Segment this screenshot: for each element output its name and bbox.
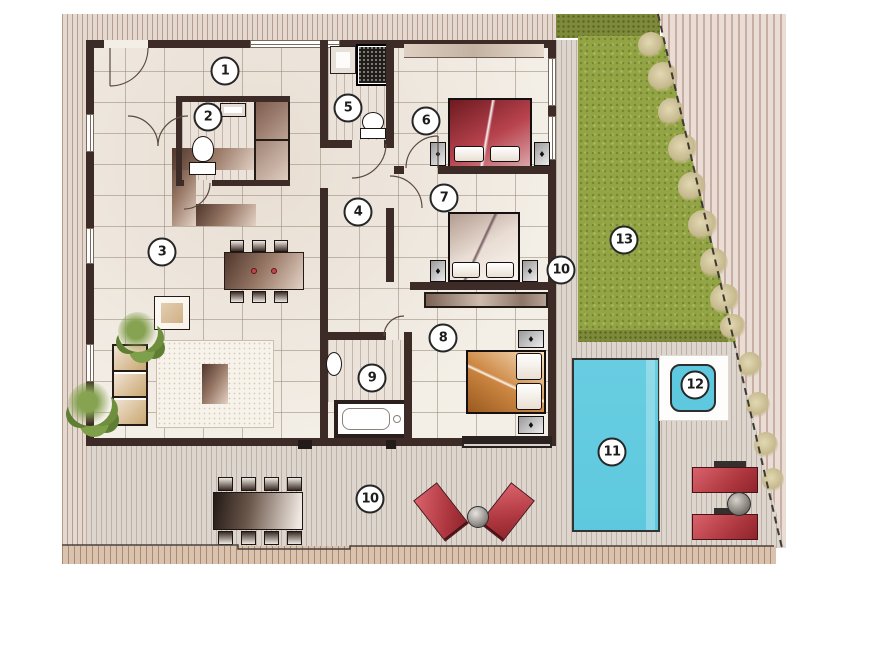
room-marker-room-1: 1 (211, 57, 240, 86)
pillow (454, 146, 484, 162)
side-table (727, 492, 751, 516)
lower-sand-band (62, 546, 776, 564)
room-marker-room-6: 6 (412, 107, 441, 136)
cooktop-dot (251, 268, 257, 274)
room-marker-room-10a: 10 (547, 256, 576, 285)
wall-bath9-top (328, 332, 386, 340)
shrub-icon (638, 32, 664, 58)
nightstand: ♦ (430, 142, 446, 166)
shrub-icon (688, 210, 718, 240)
outdoor-dining-table (213, 492, 303, 530)
outdoor-chair (218, 531, 233, 545)
dining-chair (274, 240, 288, 252)
room-marker-room-8: 8 (429, 324, 458, 353)
plant-icon (68, 382, 112, 426)
pillow (516, 353, 542, 380)
pillow (486, 262, 514, 278)
bottom-deck (86, 446, 556, 546)
nightstand: ♦ (534, 142, 550, 166)
wall-bath9-right (404, 332, 412, 438)
nightstand: ♦ (518, 416, 544, 434)
window-sill-band (404, 44, 544, 58)
floor-plan: ♦ ♦ ♦ ♦ ♦ ♦ (0, 0, 886, 670)
shrub-icon (678, 172, 706, 202)
wall-core-upper (320, 40, 328, 148)
window-left-1 (86, 114, 94, 152)
bathtub-drain (393, 415, 401, 423)
wall-bed7-bottom (410, 282, 548, 290)
washing-machine-icon (330, 46, 356, 74)
shrub-icon (746, 392, 770, 418)
room-marker-room-13: 13 (610, 226, 639, 255)
room-marker-room-3: 3 (148, 238, 177, 267)
room-marker-room-9: 9 (358, 364, 387, 393)
shelf-cell (114, 400, 146, 424)
sun-lounger (692, 514, 758, 540)
toilet-tank (360, 128, 386, 139)
garden-bottom-hedge (578, 330, 728, 342)
room-marker-room-2: 2 (194, 103, 223, 132)
window-left-3 (86, 344, 94, 382)
room-marker-room-11: 11 (598, 438, 627, 467)
room-marker-room-12: 12 (681, 371, 710, 400)
entry-door-opening (104, 40, 148, 48)
shrub-icon (658, 98, 684, 126)
sliding-door (462, 436, 552, 448)
coffee-table (202, 364, 228, 404)
outdoor-chair (287, 531, 302, 545)
armchair (154, 296, 190, 330)
lamp-icon: ♦ (527, 335, 534, 344)
dining-table (224, 252, 304, 290)
plant-icon (118, 312, 158, 352)
wall-bath5-bottom-a (328, 140, 352, 148)
bathtub-icon (334, 400, 408, 438)
dining-chair (274, 291, 288, 303)
bathtub-basin (342, 408, 390, 430)
wall-wc-left (176, 96, 182, 186)
nightstand: ♦ (430, 260, 446, 282)
kitchen-island (196, 204, 256, 226)
shrub-icon (648, 62, 678, 92)
dining-chair (230, 240, 244, 252)
shrub-icon (700, 248, 728, 278)
wall-bed6-bottom-a (394, 166, 404, 174)
sun-lounger (692, 467, 758, 493)
left-walkway (62, 14, 86, 546)
pillow (516, 383, 542, 410)
wall-bed6-bottom-b (438, 166, 548, 174)
shrub-icon (710, 284, 740, 314)
shrub-icon (720, 314, 746, 340)
door-threshold (386, 440, 396, 449)
outdoor-chair (264, 531, 279, 545)
outdoor-chair (241, 477, 256, 491)
room-marker-room-10b: 10 (356, 485, 385, 514)
dining-chair (230, 291, 244, 303)
side-table (467, 506, 489, 528)
door-threshold (298, 440, 312, 449)
wall-wc-bottom-b (212, 180, 290, 186)
shelf-unit (112, 344, 148, 426)
pillow (490, 146, 520, 162)
room-marker-room-7: 7 (430, 184, 459, 213)
shrub-icon (754, 432, 778, 458)
nightstand: ♦ (522, 260, 538, 282)
lamp-icon: ♦ (538, 150, 545, 159)
sink-icon (326, 352, 342, 376)
outdoor-chair (264, 477, 279, 491)
shrub-icon (668, 134, 698, 164)
dining-chair (252, 240, 266, 252)
lamp-icon: ♦ (527, 421, 534, 430)
lamp-icon: ♦ (434, 150, 441, 159)
shower-icon (356, 44, 390, 86)
dining-chair (252, 291, 266, 303)
sink-icon (220, 103, 246, 117)
cooktop-dot (271, 268, 277, 274)
wall-wc-top (176, 96, 290, 102)
toilet-tank (189, 162, 216, 175)
nightstand: ♦ (518, 330, 544, 348)
window-left-2 (86, 228, 94, 264)
pool-lane (646, 360, 655, 530)
wall-core-lower (320, 188, 328, 438)
tall-cabinet-divider (256, 139, 288, 141)
lamp-icon: ♦ (526, 267, 533, 276)
pillow (452, 262, 480, 278)
wall-bath5-right (386, 40, 394, 148)
outdoor-chair (287, 477, 302, 491)
tall-cabinet (254, 96, 290, 186)
shrub-icon (738, 352, 762, 378)
outdoor-chair (241, 531, 256, 545)
wall-bed7-left (386, 208, 394, 282)
side-deck-strip (556, 40, 580, 342)
window-right-1 (548, 58, 556, 106)
outdoor-chair (218, 477, 233, 491)
wardrobe (424, 292, 548, 308)
toilet-icon (192, 136, 214, 162)
room-marker-room-4: 4 (344, 198, 373, 227)
wall-wc-bottom-a (176, 180, 184, 186)
shelf-cell (114, 374, 146, 398)
shrub-icon (762, 468, 784, 492)
lamp-icon: ♦ (434, 267, 441, 276)
lounger-headrest (714, 461, 746, 467)
room-marker-room-5: 5 (334, 94, 363, 123)
top-walkway (62, 14, 556, 40)
